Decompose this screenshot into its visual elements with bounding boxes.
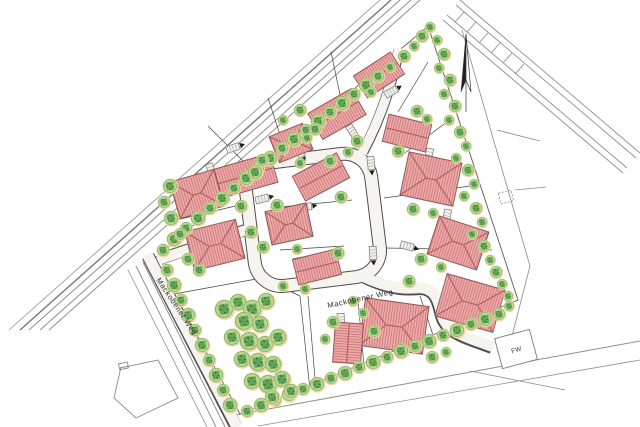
tree xyxy=(467,229,479,241)
tree xyxy=(182,253,196,267)
tree xyxy=(228,182,242,196)
tree xyxy=(462,164,476,178)
tree xyxy=(204,202,218,216)
tree xyxy=(191,211,207,227)
north-arrow-icon xyxy=(461,34,471,112)
tree xyxy=(324,155,338,169)
neighbor-building-outline xyxy=(114,360,178,418)
tree xyxy=(368,325,382,339)
tree xyxy=(195,338,211,354)
tree xyxy=(407,203,421,217)
tree xyxy=(451,153,463,165)
tree xyxy=(338,366,354,382)
tree xyxy=(490,266,504,280)
tree xyxy=(235,200,249,214)
tree xyxy=(366,355,382,371)
tree xyxy=(469,179,481,191)
tree xyxy=(203,354,217,368)
tree xyxy=(348,88,362,102)
tree xyxy=(294,104,308,118)
tree xyxy=(493,308,507,322)
tree xyxy=(436,262,448,274)
tree xyxy=(287,132,303,148)
tree xyxy=(215,191,231,207)
tree xyxy=(437,329,451,343)
tree xyxy=(409,340,423,354)
tree xyxy=(320,334,332,346)
garage xyxy=(226,141,246,154)
tree xyxy=(444,115,456,127)
tree xyxy=(292,244,304,256)
tree xyxy=(444,74,458,88)
tree xyxy=(284,384,300,400)
tree xyxy=(257,241,271,255)
tree xyxy=(366,87,378,99)
tree xyxy=(358,308,370,320)
tree xyxy=(241,405,255,419)
tree xyxy=(278,281,290,293)
tree xyxy=(335,96,351,112)
tree xyxy=(161,264,175,278)
tree xyxy=(381,351,395,365)
tree xyxy=(461,141,473,153)
tree xyxy=(343,147,355,159)
tree xyxy=(302,133,314,145)
tree xyxy=(403,275,417,289)
tree xyxy=(425,22,437,34)
tree xyxy=(428,208,440,220)
tree xyxy=(454,126,468,140)
tree xyxy=(251,315,269,333)
tree xyxy=(372,70,386,84)
tree xyxy=(385,62,397,74)
tree xyxy=(257,292,275,310)
tree xyxy=(478,240,492,254)
tree xyxy=(394,344,410,360)
tree xyxy=(415,253,429,267)
tree xyxy=(158,196,172,210)
tree xyxy=(470,202,484,216)
tree xyxy=(223,328,241,346)
tree xyxy=(438,48,452,62)
tree xyxy=(300,284,312,296)
fw-marker: FW xyxy=(495,329,538,368)
tree xyxy=(503,291,515,303)
tree xyxy=(351,135,365,149)
tree xyxy=(434,63,446,75)
tree xyxy=(459,191,471,203)
tree xyxy=(276,142,290,156)
tree xyxy=(223,398,239,414)
tree xyxy=(439,89,451,101)
tree xyxy=(248,165,264,181)
tree xyxy=(422,114,434,126)
tree xyxy=(325,372,339,386)
tree xyxy=(324,106,338,120)
tree xyxy=(392,145,406,159)
tree xyxy=(422,334,438,350)
tree xyxy=(335,191,349,205)
tree xyxy=(332,247,346,261)
tree xyxy=(411,105,425,119)
tree xyxy=(174,228,188,242)
tree xyxy=(477,217,489,229)
site-plan-page: FW Mackobener Weg Mackobener Weg xyxy=(0,0,640,427)
site-plan-map: FW Mackobener Weg Mackobener Weg xyxy=(0,0,640,427)
tree xyxy=(398,50,412,64)
tree xyxy=(409,41,421,53)
tree xyxy=(441,347,453,359)
tree xyxy=(217,384,231,398)
tree xyxy=(278,115,290,127)
tree xyxy=(449,100,463,114)
tree xyxy=(327,316,341,330)
tree xyxy=(245,226,259,240)
top-right-road xyxy=(443,0,640,173)
tree xyxy=(497,279,509,291)
tree xyxy=(269,328,287,346)
tree xyxy=(465,318,479,332)
tree xyxy=(271,199,285,213)
tree xyxy=(450,323,466,339)
tree xyxy=(163,179,179,195)
tree xyxy=(310,377,326,393)
house-gable-roof xyxy=(333,322,364,364)
tree xyxy=(209,368,225,384)
tree xyxy=(478,312,494,328)
tree xyxy=(504,301,516,313)
tree xyxy=(432,35,444,47)
tree xyxy=(353,361,367,375)
tree xyxy=(157,244,171,258)
tree xyxy=(485,255,497,267)
tree xyxy=(295,158,307,170)
tree xyxy=(193,264,207,278)
tree xyxy=(426,351,440,365)
tree xyxy=(265,390,281,406)
tree xyxy=(164,211,180,227)
